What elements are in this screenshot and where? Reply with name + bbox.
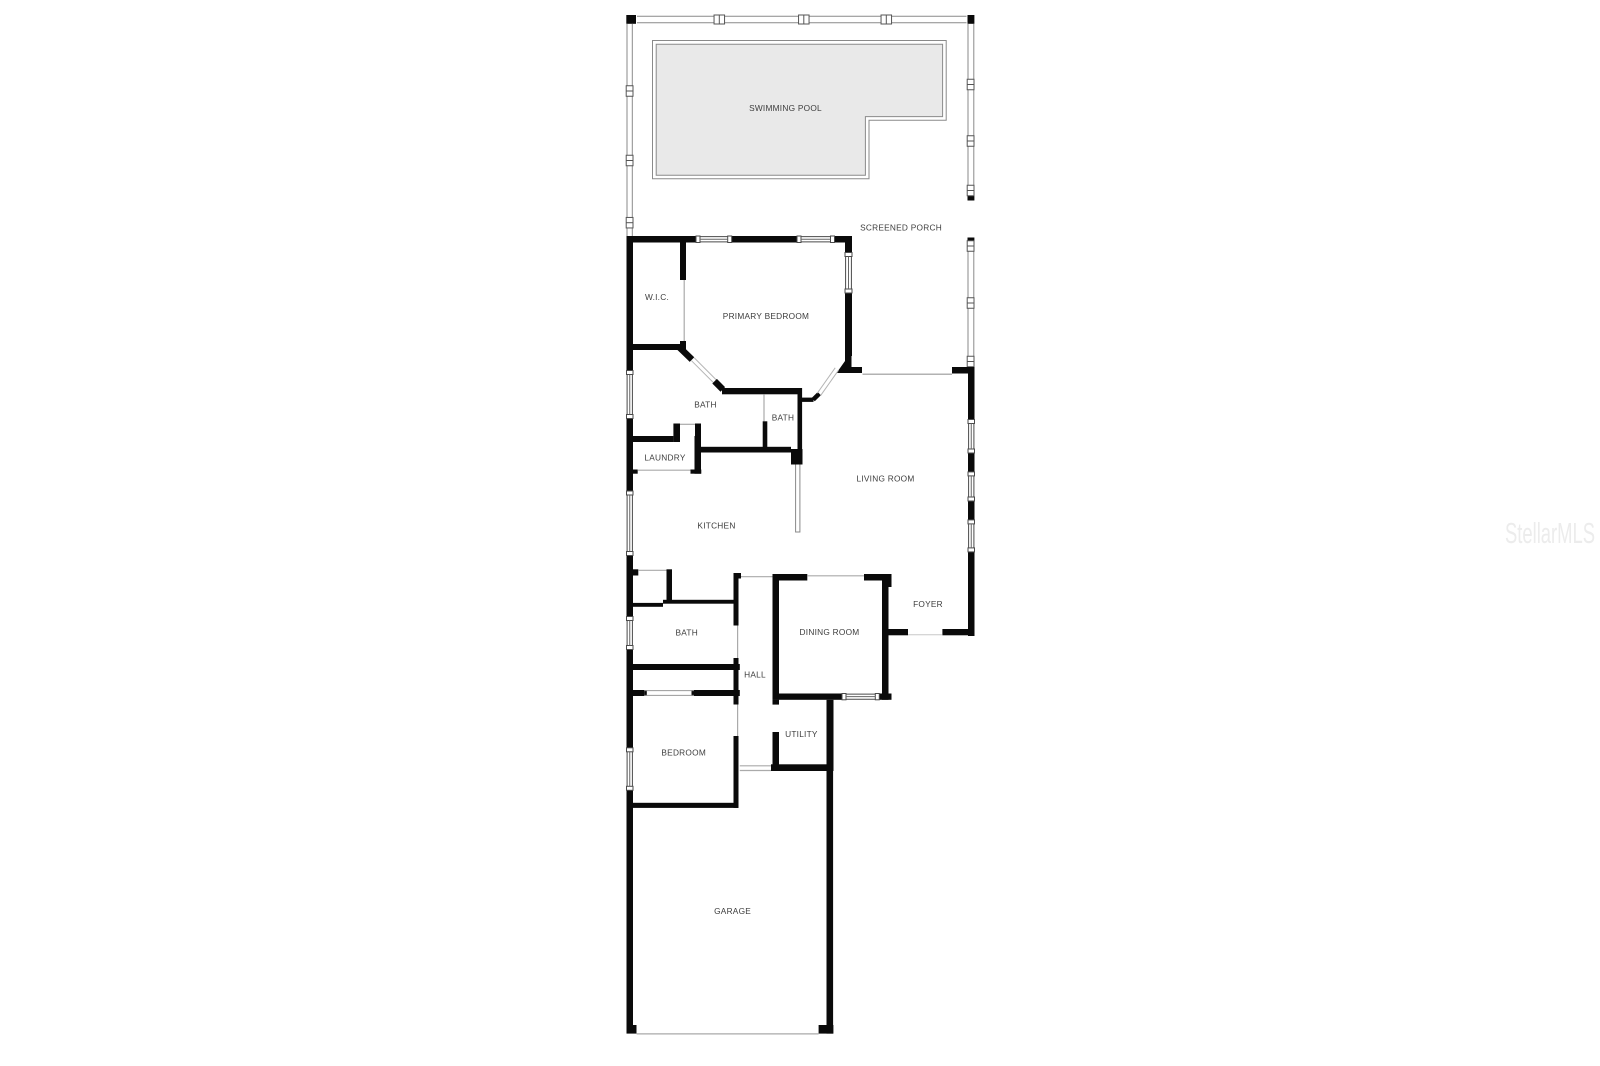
svg-text:FOYER: FOYER [913,599,943,609]
svg-text:DINING ROOM: DINING ROOM [800,627,860,637]
svg-text:LAUNDRY: LAUNDRY [644,453,685,463]
svg-text:BATH: BATH [694,400,717,410]
svg-text:SCREENED PORCH: SCREENED PORCH [860,223,942,233]
svg-text:HALL: HALL [744,670,766,680]
svg-text:BATH: BATH [772,413,795,423]
svg-text:BATH: BATH [675,627,698,637]
svg-text:W.I.C.: W.I.C. [645,292,669,302]
svg-text:LIVING ROOM: LIVING ROOM [856,473,914,483]
svg-text:StellarMLS: StellarMLS [1505,518,1595,550]
svg-text:KITCHEN: KITCHEN [697,520,735,530]
svg-text:UTILITY: UTILITY [785,729,818,739]
svg-text:PRIMARY BEDROOM: PRIMARY BEDROOM [723,311,809,321]
svg-text:GARAGE: GARAGE [714,906,751,916]
svg-text:BEDROOM: BEDROOM [661,748,706,758]
svg-text:SWIMMING POOL: SWIMMING POOL [749,103,822,113]
